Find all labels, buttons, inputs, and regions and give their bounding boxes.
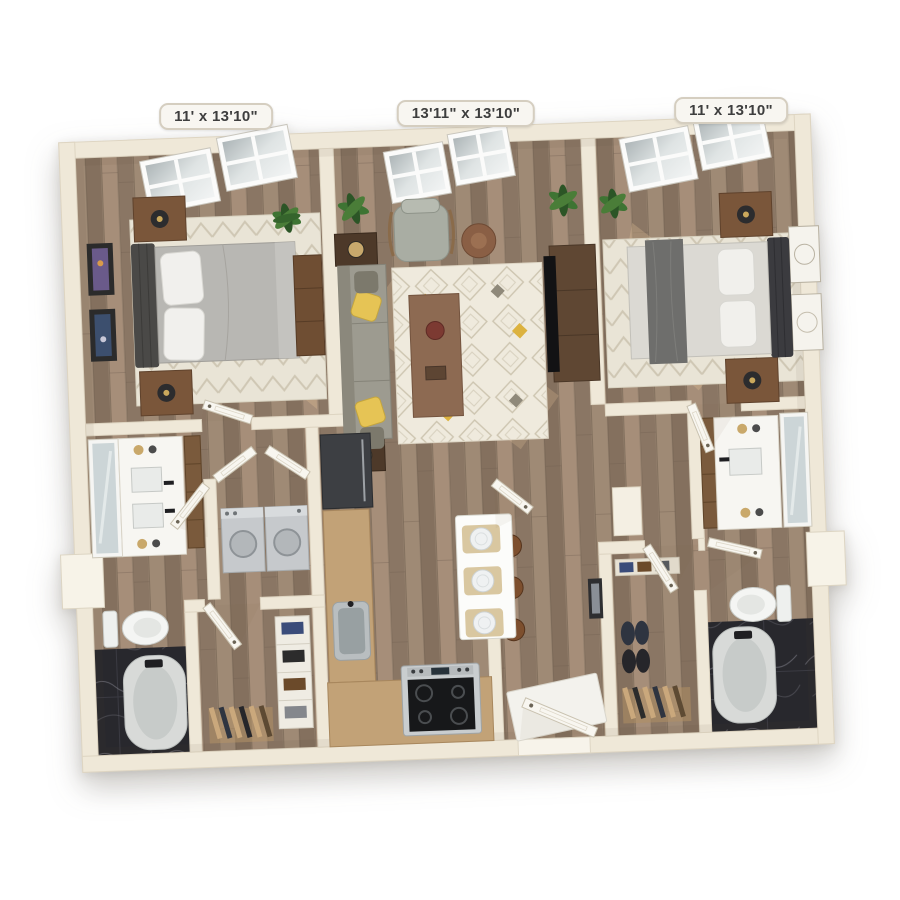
toilet (103, 609, 169, 647)
tub-faucet (734, 631, 752, 640)
dryer (265, 506, 309, 572)
tv-console (543, 244, 600, 382)
room-dimension-label-bedroom-left: 11' x 13'10" (159, 103, 273, 130)
floorplan-rendering (0, 0, 900, 900)
shoe-rack (622, 685, 691, 724)
bed (627, 235, 794, 365)
kitchen-island (455, 514, 516, 640)
bathtub (122, 654, 188, 750)
dresser (293, 255, 325, 356)
vanity-counter (118, 436, 186, 556)
wall-niche-left (61, 553, 105, 609)
kitchen-sink (333, 600, 371, 660)
vanity-counter (714, 415, 782, 529)
wall-niche-right (806, 531, 846, 586)
shoe-rack (208, 705, 273, 744)
sofa (338, 264, 393, 450)
tub-faucet (145, 659, 163, 668)
table-lamp (348, 241, 365, 258)
entry-threshold (518, 737, 591, 756)
washer (221, 507, 265, 573)
floorplan-page: 11' x 13'10" 13'11" x 13'10" 11' x 13'10… (0, 0, 900, 900)
throw-blanket (645, 239, 688, 364)
bathtub (712, 626, 778, 724)
coffee-table (409, 294, 464, 418)
linen-alcove (612, 487, 642, 536)
range-stove (401, 663, 482, 736)
room-dimension-label-bedroom-right: 11' x 13'10" (674, 97, 788, 124)
room-dimension-label-living-dining: 13'11" x 13'10" (397, 100, 535, 127)
bed (131, 238, 300, 368)
